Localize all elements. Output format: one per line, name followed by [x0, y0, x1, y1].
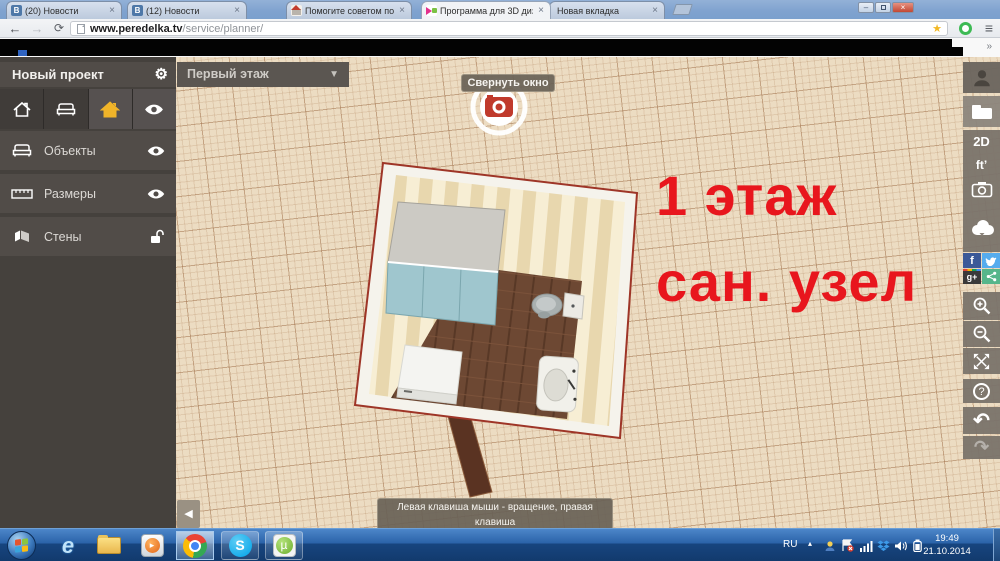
reload-button[interactable]: ⟳ — [50, 20, 68, 37]
bookmarks-overflow-chevron[interactable]: » — [986, 41, 992, 52]
tab-title: Помогите советом по пр — [305, 6, 394, 16]
walls-icon — [13, 229, 31, 244]
volume-icon[interactable] — [893, 538, 908, 553]
lock-toggle[interactable] — [136, 229, 176, 244]
utorrent-icon: µ — [273, 534, 296, 557]
show-desktop-button[interactable] — [993, 529, 1000, 561]
sidebar-item-label: Объекты — [44, 144, 136, 158]
browser-tabstrip: B (20) Новости × B (12) Новости × Помоги… — [0, 0, 1000, 19]
tab-close-icon[interactable]: × — [650, 6, 660, 16]
zoom-in-button[interactable] — [963, 292, 1000, 320]
eye-icon — [147, 188, 165, 200]
tab-close-icon[interactable]: × — [397, 6, 407, 16]
zoom-in-icon — [972, 296, 992, 316]
help-button[interactable]: ? — [963, 379, 1000, 403]
gear-icon[interactable]: ⚙ — [155, 62, 168, 87]
zoom-out-button[interactable] — [963, 321, 1000, 347]
tab-close-icon[interactable]: × — [536, 6, 546, 16]
sidebar-item-objects[interactable]: Объекты — [0, 131, 176, 170]
tab-title: Программа для 3D дизай — [440, 6, 533, 16]
sidebar-collapse-button[interactable]: ◀ — [177, 500, 200, 528]
house-favicon — [291, 5, 302, 16]
taskbar-ie[interactable]: e — [52, 531, 84, 560]
tab-new-tab[interactable]: Новая вкладка × — [549, 1, 665, 19]
eye-icon — [147, 145, 165, 157]
planner-favicon — [426, 5, 437, 16]
share-nodes-icon — [986, 271, 997, 282]
chevron-down-icon: ▼ — [329, 62, 339, 87]
house-filled-icon — [100, 101, 120, 118]
media-player-icon: ▸ — [141, 534, 164, 557]
person-icon — [971, 67, 993, 89]
sidebar-item-label: Размеры — [44, 187, 136, 201]
tab-title: (20) Новости — [25, 6, 104, 16]
tool-home-outline[interactable] — [0, 89, 44, 129]
cloud-icon — [968, 218, 996, 238]
facebook-icon[interactable]: f — [963, 253, 981, 268]
bookmarks-bar: » — [0, 38, 1000, 57]
url-host: www.peredelka.tv — [90, 23, 183, 35]
planner-app: 1 этаж сан. узел Свернуть окно Левая кла… — [0, 57, 1000, 528]
google-plus-icon[interactable]: g+ — [963, 269, 981, 284]
screenshot-button[interactable] — [963, 176, 1000, 203]
share-icon[interactable] — [982, 269, 1000, 284]
sofa-icon — [12, 143, 32, 158]
zoom-out-icon — [972, 324, 992, 344]
project-title-bar: Новый проект ⚙ — [0, 62, 176, 87]
ruler-icon — [11, 188, 33, 200]
sidebar-item-label: Стены — [44, 230, 136, 244]
desktop-screen: B (20) Новости × B (12) Новости × Помоги… — [0, 0, 1000, 561]
chrome-menu-icon[interactable]: ≡ — [985, 20, 993, 37]
minimize-window-tooltip: Свернуть окно — [461, 74, 555, 92]
question-mark-icon: ? — [973, 383, 990, 400]
windows-taskbar: e ▸ S µ RU ▴ — [0, 528, 1000, 561]
sidebar: Новый проект ⚙ — [0, 57, 176, 528]
address-bar[interactable]: www.peredelka.tv /service/planner/ ★ — [70, 21, 948, 36]
cloud-save-button[interactable] — [963, 203, 1000, 252]
sidebar-toolbar — [0, 89, 176, 129]
house-outline-icon — [12, 101, 32, 118]
maximize-icon — [881, 5, 886, 10]
washing-machine[interactable] — [397, 345, 462, 404]
eye-icon — [144, 103, 164, 116]
taskbar-explorer[interactable] — [92, 531, 126, 560]
windows-logo-icon — [15, 538, 28, 552]
taskbar-chrome-active[interactable] — [176, 531, 214, 560]
internet-explorer-icon: e — [62, 533, 74, 559]
projects-folder-button[interactable] — [963, 96, 1000, 127]
folder-icon — [970, 103, 994, 121]
bookmark-fragment — [18, 50, 27, 56]
window-minimize-button[interactable]: – — [858, 2, 874, 13]
browser-toolbar: ← → ⟳ www.peredelka.tv /service/planner/… — [0, 19, 1000, 38]
tray-date: 21.10.2014 — [916, 545, 978, 558]
vk-favicon: B — [132, 5, 143, 16]
redo-button-disabled[interactable]: ↷ — [963, 436, 1000, 459]
explorer-folder-icon — [97, 537, 121, 554]
tab-vk-news-20[interactable]: B (20) Новости × — [6, 1, 122, 19]
tray-clock[interactable]: 19:49 21.10.2014 — [916, 532, 978, 558]
tool-objects[interactable] — [44, 89, 88, 129]
chrome-icon — [183, 534, 207, 558]
sofa-icon — [56, 102, 76, 117]
vk-favicon: B — [11, 5, 22, 16]
window-maximize-button[interactable] — [875, 2, 891, 13]
redacted-bookmarks-step — [952, 47, 963, 56]
visibility-toggle[interactable] — [136, 145, 176, 157]
sink[interactable] — [536, 356, 579, 413]
bookmark-star-icon[interactable]: ★ — [932, 22, 942, 35]
back-button[interactable]: ← — [6, 20, 24, 37]
fullscreen-button[interactable] — [963, 348, 1000, 374]
network-signal-icon[interactable] — [858, 538, 873, 553]
sidebar-item-walls[interactable]: Стены — [0, 217, 176, 256]
red-annotation: 1 этаж сан. узел — [656, 153, 917, 325]
tray-time: 19:49 — [916, 532, 978, 545]
account-button[interactable] — [963, 62, 1000, 93]
floor-select-label: Первый этаж — [187, 67, 269, 81]
tool-home-filled-active[interactable] — [89, 89, 133, 129]
dropbox-icon[interactable] — [876, 538, 891, 553]
forward-button[interactable]: → — [28, 20, 46, 37]
mouse-controls-hint: Левая клавиша мыши - вращение, правая кл… — [377, 498, 613, 528]
sidebar-item-dimensions[interactable]: Размеры — [0, 174, 176, 213]
twitter-icon[interactable] — [982, 253, 1000, 268]
new-tab-button[interactable] — [672, 4, 693, 15]
tab-vk-news-12[interactable]: B (12) Новости × — [127, 1, 247, 19]
floor-select-dropdown[interactable]: Первый этаж ▼ — [177, 62, 349, 87]
annotation-line-2: сан. узел — [656, 239, 917, 325]
units-ft-button[interactable]: ft’ — [963, 153, 1000, 176]
unlock-icon — [148, 229, 164, 244]
redacted-bookmarks — [0, 39, 952, 56]
skype-icon: S — [229, 534, 252, 557]
tab-title: (12) Новости — [146, 6, 229, 16]
camera-icon — [971, 181, 993, 198]
tab-3d-planner-active[interactable]: Программа для 3D дизай × — [421, 1, 551, 19]
url-path: /service/planner/ — [183, 23, 264, 35]
taskbar-skype[interactable]: S — [221, 531, 259, 560]
tab-close-icon[interactable]: × — [232, 6, 242, 16]
undo-button[interactable]: ↶ — [963, 407, 1000, 434]
extension-icon[interactable] — [959, 22, 972, 35]
page-icon — [77, 24, 85, 34]
taskbar-utorrent[interactable]: µ — [265, 531, 303, 560]
window-close-button[interactable]: × — [892, 2, 914, 13]
action-center-flag-icon[interactable] — [840, 538, 855, 553]
tab-title: Новая вкладка — [557, 6, 647, 16]
mode-2d-button[interactable]: 2D — [963, 130, 1000, 153]
tab-forum-help[interactable]: Помогите советом по пр × — [286, 1, 412, 19]
expand-arrows-icon — [972, 352, 991, 371]
hint-line-1: Левая клавиша мыши - вращение, правая кл… — [378, 500, 612, 528]
tab-close-icon[interactable]: × — [107, 6, 117, 16]
hidden-icons-chevron[interactable]: ▴ — [808, 539, 812, 548]
shower-cabin[interactable] — [386, 202, 505, 325]
taskbar-media-player[interactable]: ▸ — [136, 531, 168, 560]
project-title: Новый проект — [12, 67, 104, 82]
annotation-line-1: 1 этаж — [656, 153, 917, 239]
start-button[interactable] — [7, 531, 36, 560]
visibility-toggle[interactable] — [136, 188, 176, 200]
tray-user-icon[interactable] — [822, 538, 837, 553]
tool-visibility[interactable] — [133, 89, 176, 129]
language-indicator[interactable]: RU — [783, 539, 797, 550]
twitter-bird-icon — [985, 256, 997, 266]
